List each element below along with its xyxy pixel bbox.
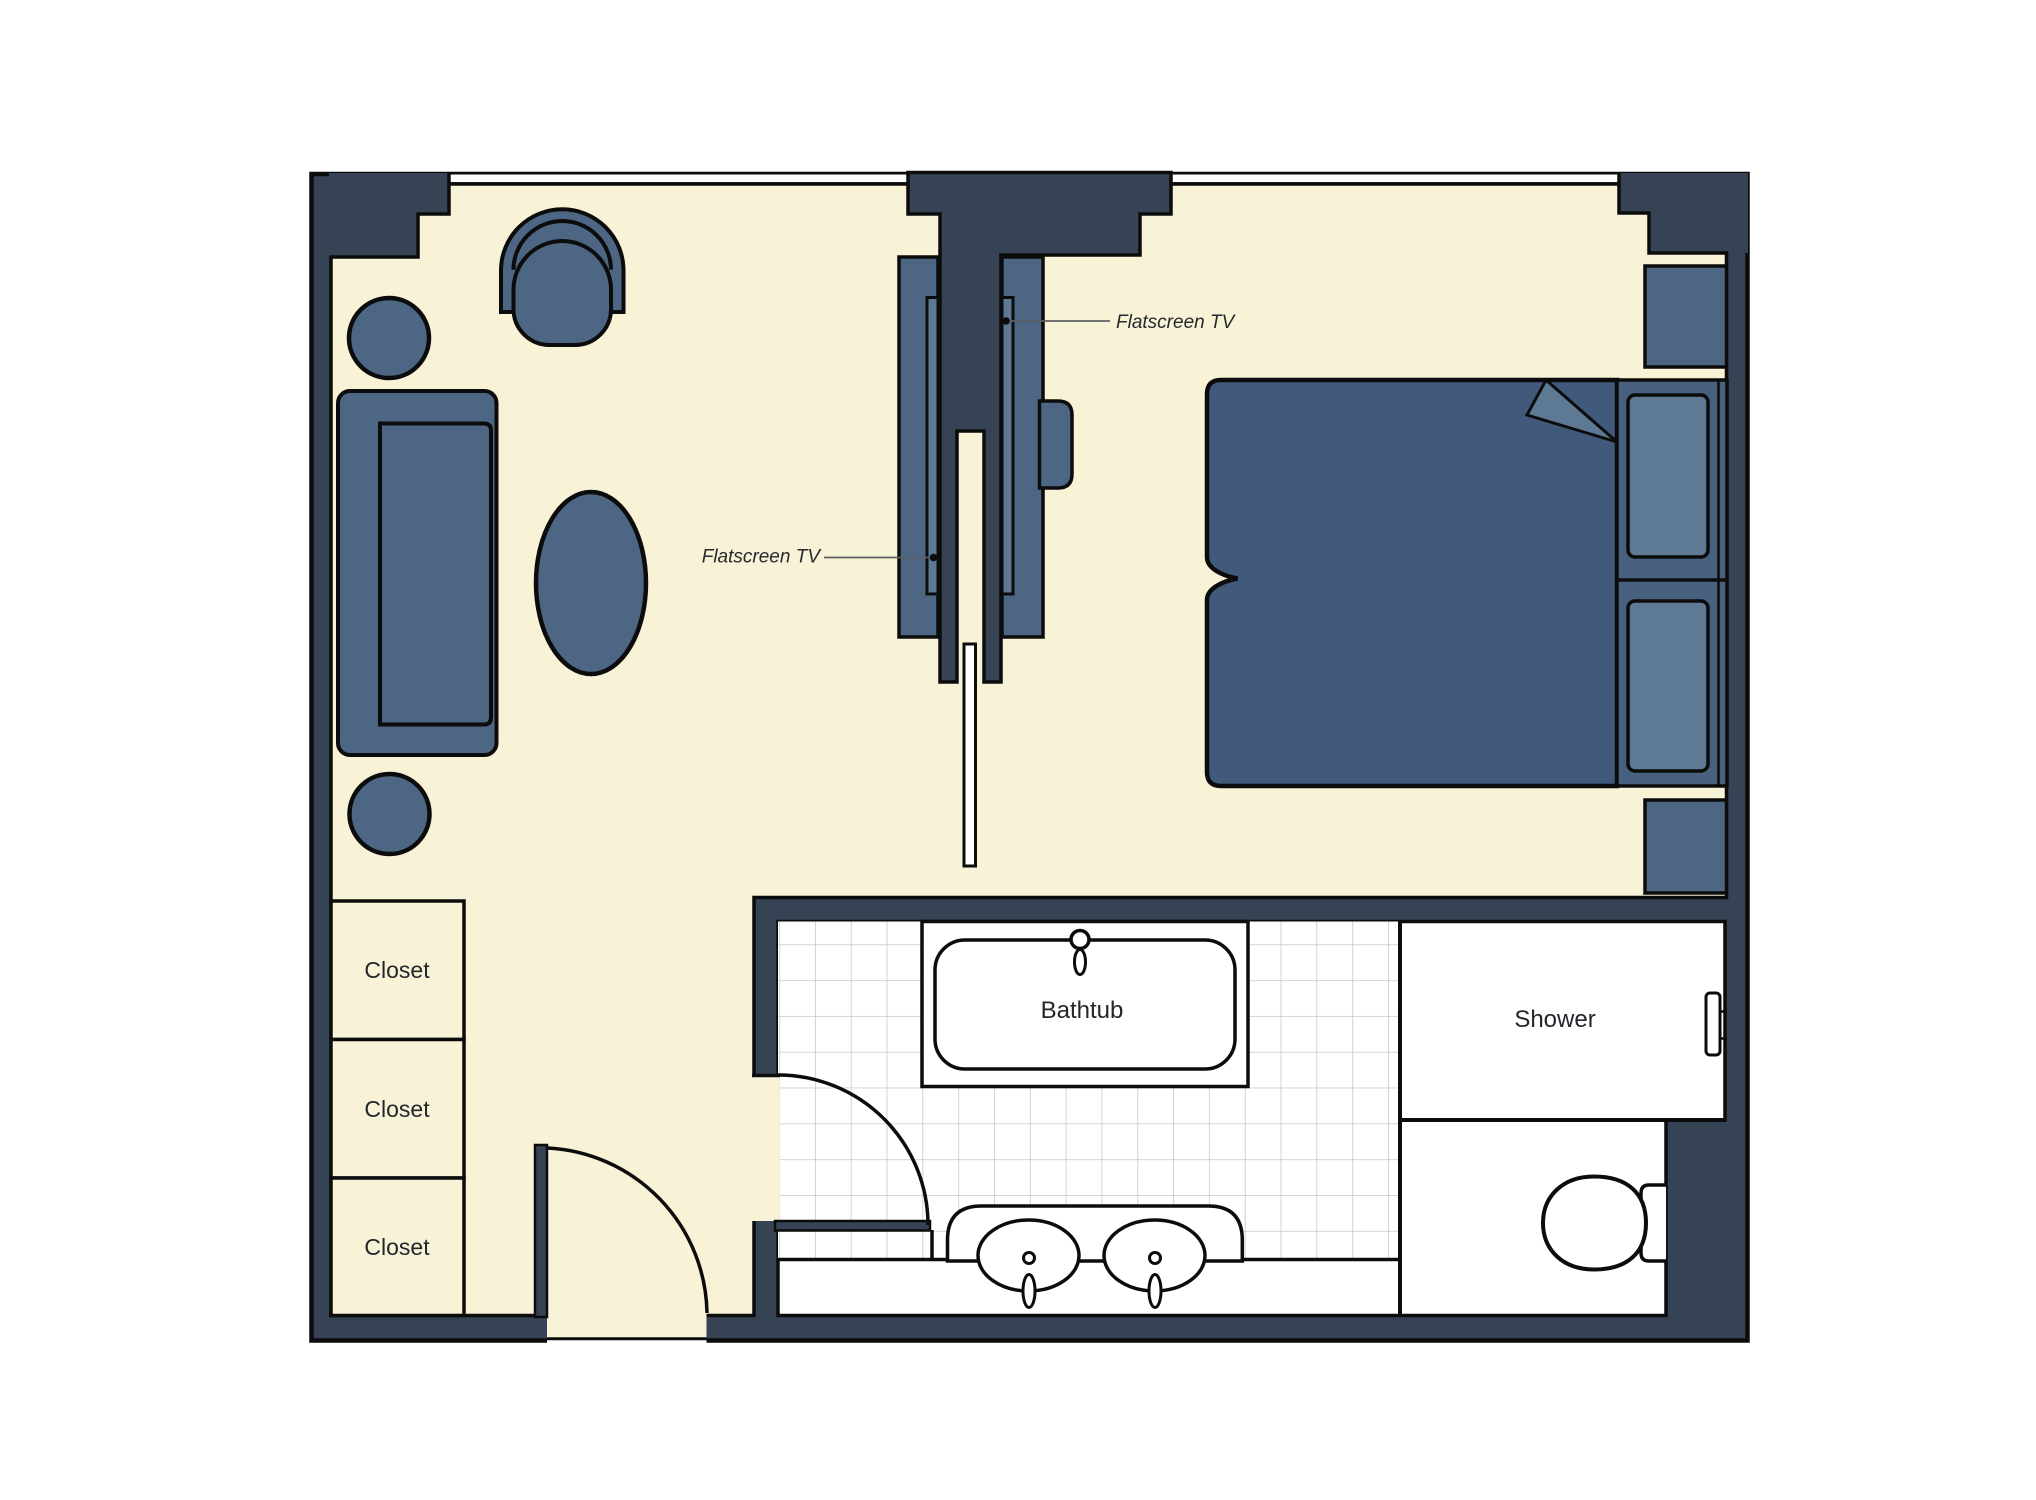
svg-text:Shower: Shower [1514, 1006, 1595, 1033]
svg-text:Closet: Closet [364, 957, 430, 983]
svg-text:Bathtub: Bathtub [1041, 997, 1124, 1024]
svg-text:Flatscreen TV: Flatscreen TV [702, 547, 823, 568]
svg-text:Flatscreen TV: Flatscreen TV [1116, 312, 1237, 333]
svg-text:Closet: Closet [364, 1234, 430, 1260]
svg-text:Closet: Closet [364, 1096, 430, 1122]
